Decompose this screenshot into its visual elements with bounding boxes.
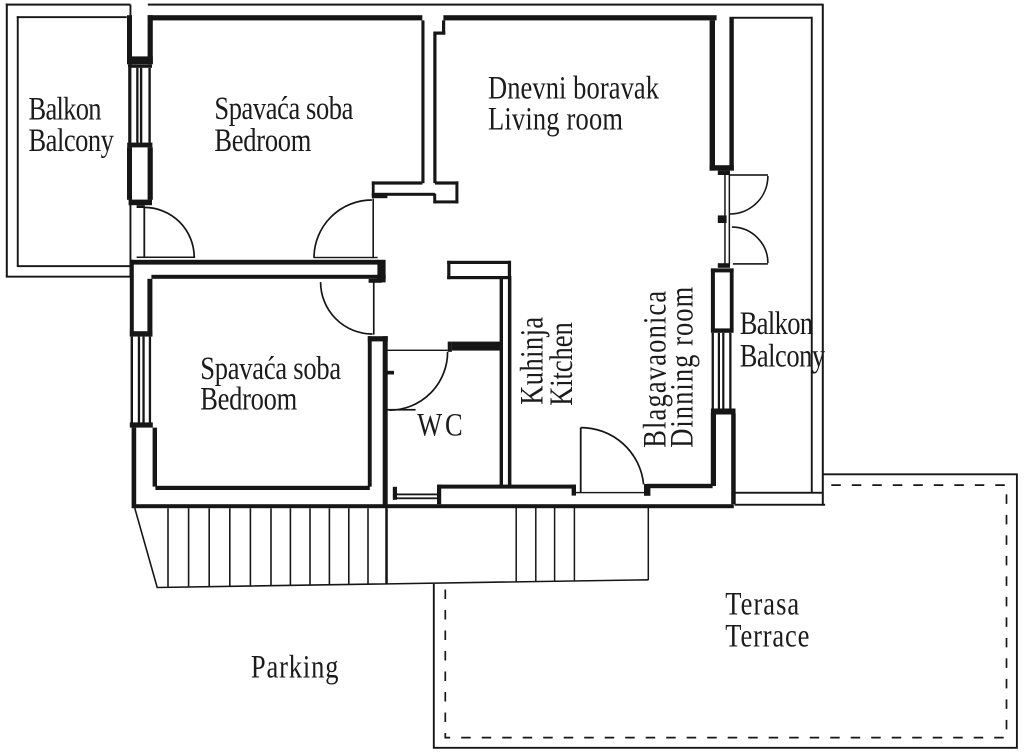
- svg-text:Bedroom: Bedroom: [214, 122, 311, 158]
- svg-text:Balcony: Balcony: [29, 122, 114, 158]
- svg-text:Terrace: Terrace: [725, 618, 809, 654]
- svg-text:Dinning room: Dinning room: [664, 287, 700, 448]
- svg-text:Kitchen: Kitchen: [543, 322, 579, 406]
- svg-text:Parking: Parking: [251, 649, 339, 685]
- svg-text:Balcony: Balcony: [740, 338, 825, 374]
- svg-text:Living room: Living room: [488, 101, 623, 137]
- svg-text:WC: WC: [417, 407, 463, 443]
- svg-text:Bedroom: Bedroom: [200, 381, 297, 417]
- svg-text:Balkon: Balkon: [740, 305, 813, 341]
